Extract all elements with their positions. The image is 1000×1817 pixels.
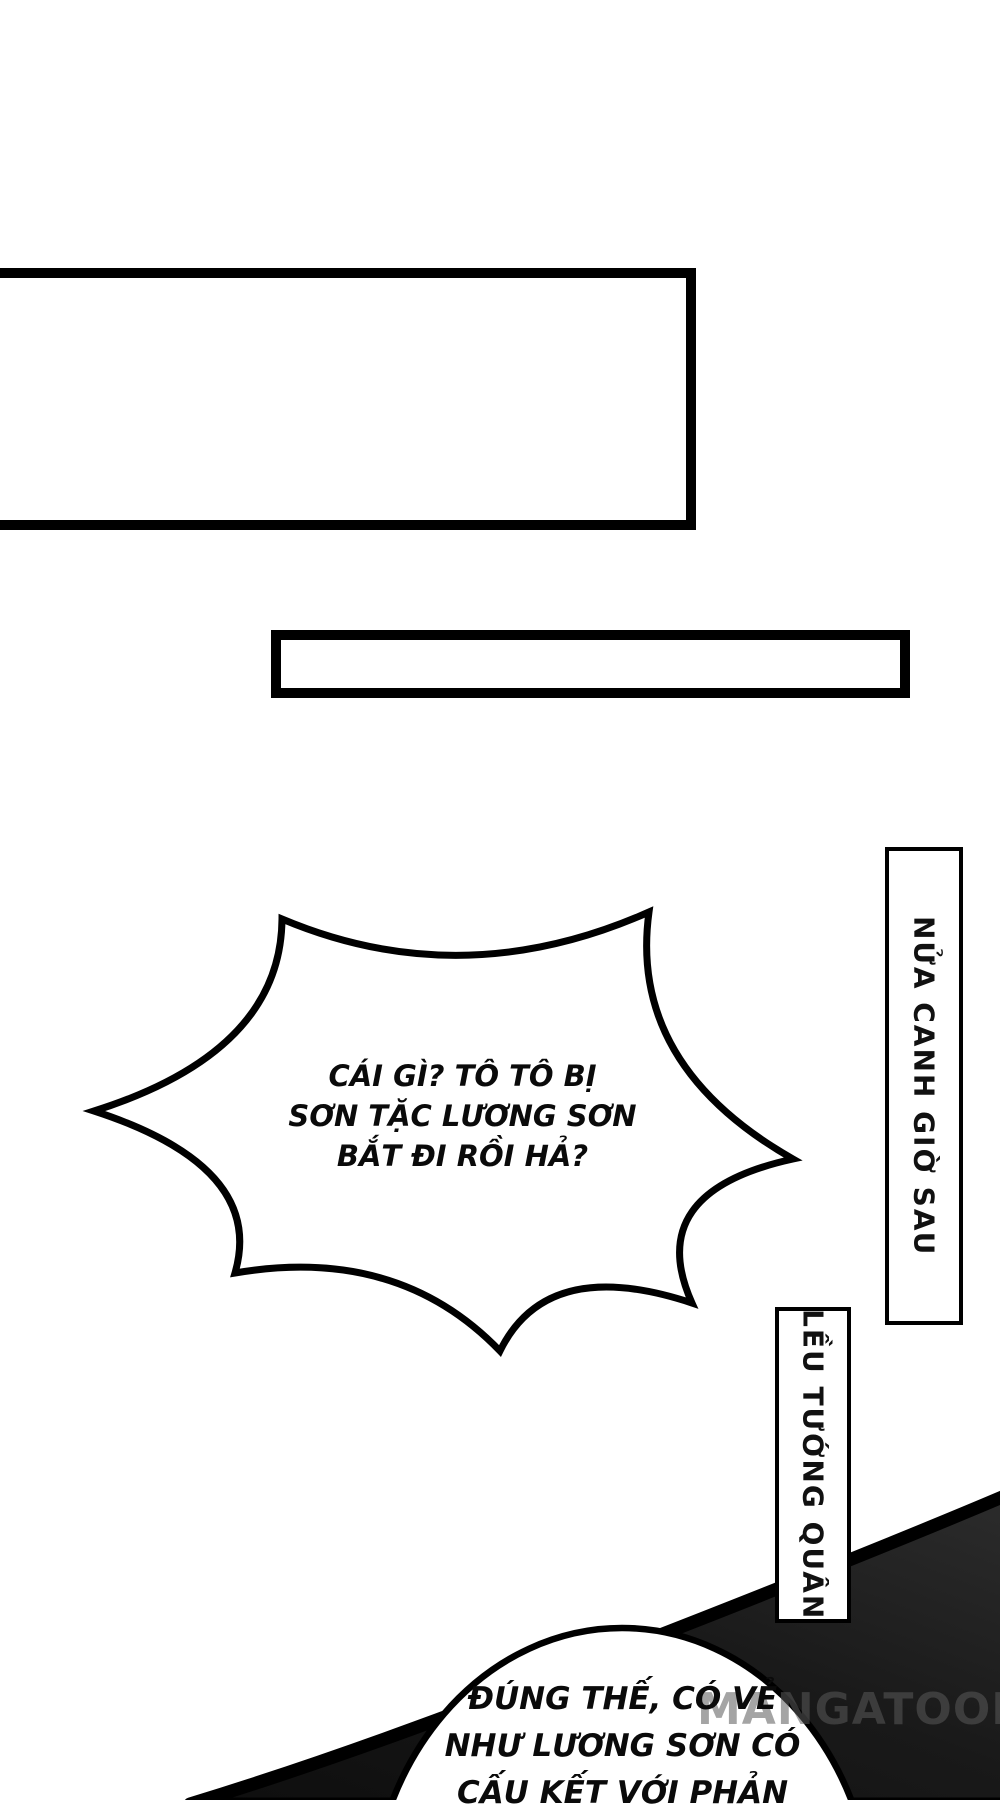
comic-page: { "page": { "kind": "webtoon-comic-page"…: [0, 0, 1000, 1800]
shout-bubble-text: CÁI GÌ? TÔ TÔ BỊ SƠN TẶC LƯƠNG SƠN BẮT Đ…: [270, 1056, 655, 1176]
shout-line: SƠN TẶC LƯƠNG SƠN: [270, 1096, 655, 1136]
speech-bubble-text: ĐÚNG THẾ, CÓ VẺ NHƯ LƯƠNG SƠN CÓ CẤU KẾT…: [400, 1676, 845, 1817]
speech-line: ĐÚNG THẾ, CÓ VẺ: [400, 1676, 845, 1723]
caption-box-place: LỀU TƯỚNG QUÂN: [775, 1307, 851, 1623]
speech-line: CẤU KẾT VỚI PHẢN: [400, 1770, 845, 1817]
shout-line: BẮT ĐI RỒI HẢ?: [270, 1136, 655, 1176]
caption-time-text: NỬA CANH GIỜ SAU: [908, 916, 941, 1256]
caption-box-time: NỬA CANH GIỜ SAU: [885, 847, 963, 1325]
speech-line: NHƯ LƯƠNG SƠN CÓ: [400, 1723, 845, 1770]
caption-place-text: LỀU TƯỚNG QUÂN: [797, 1309, 830, 1620]
shout-line: CÁI GÌ? TÔ TÔ BỊ: [270, 1056, 655, 1096]
